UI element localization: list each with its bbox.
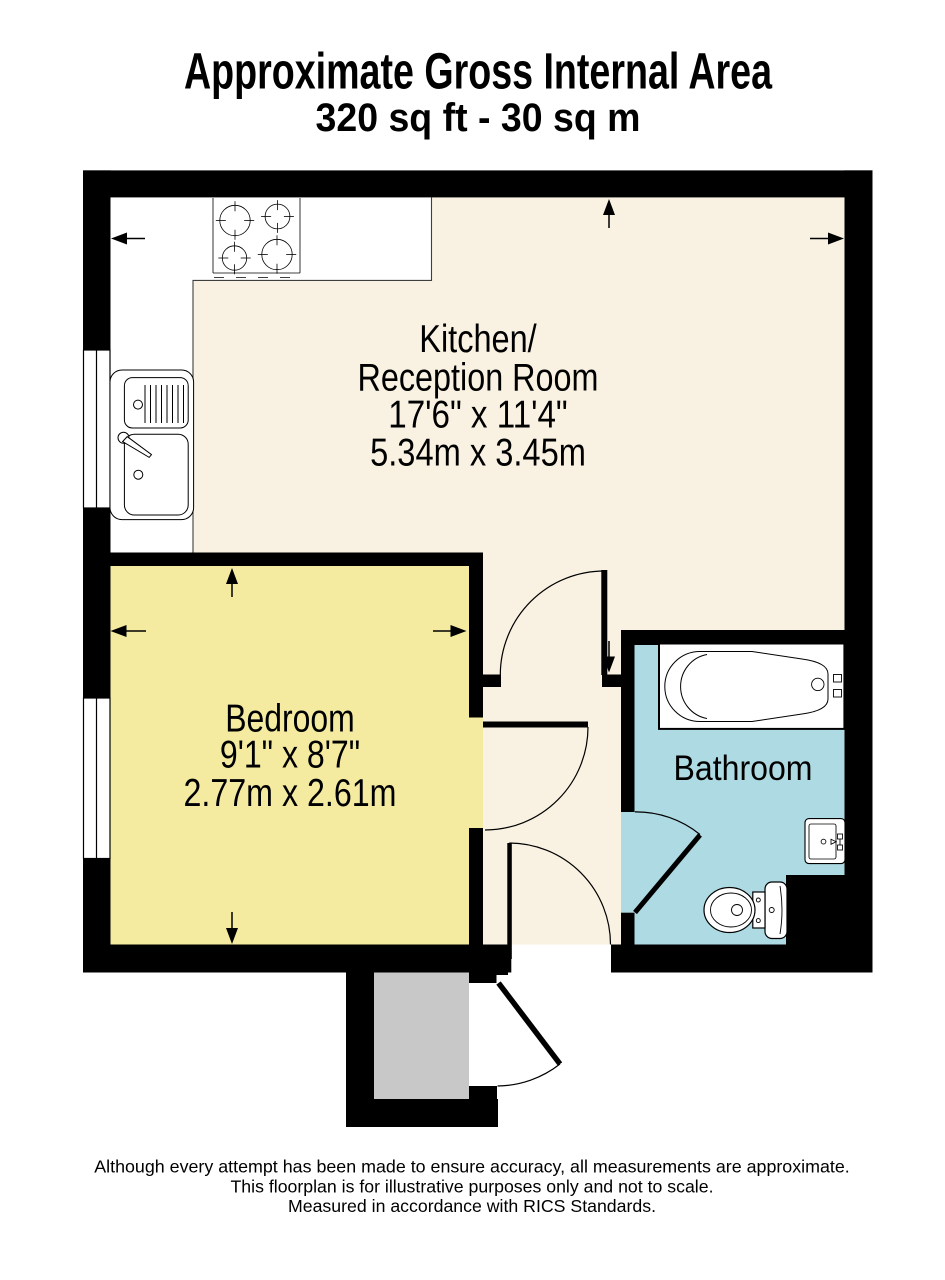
svg-text:17'6" x 11'4": 17'6" x 11'4" (388, 394, 567, 437)
svg-text:9'1" x 8'7": 9'1" x 8'7" (220, 733, 360, 776)
svg-text:This floorplan is for illustra: This floorplan is for illustrative purpo… (231, 1176, 714, 1196)
svg-text:Although every attempt has bee: Although every attempt has been made to … (94, 1157, 850, 1177)
svg-text:Kitchen/: Kitchen/ (419, 318, 537, 361)
svg-text:Measured in accordance with RI: Measured in accordance with RICS Standar… (288, 1196, 656, 1216)
svg-text:320 sq ft - 30 sq m: 320 sq ft - 30 sq m (316, 96, 641, 140)
svg-text:Bathroom: Bathroom (674, 749, 813, 788)
svg-text:5.34m x 3.45m: 5.34m x 3.45m (370, 432, 586, 475)
svg-text:2.77m x 2.61m: 2.77m x 2.61m (184, 772, 397, 815)
svg-text:Approximate Gross Internal Are: Approximate Gross Internal Area (184, 43, 772, 100)
